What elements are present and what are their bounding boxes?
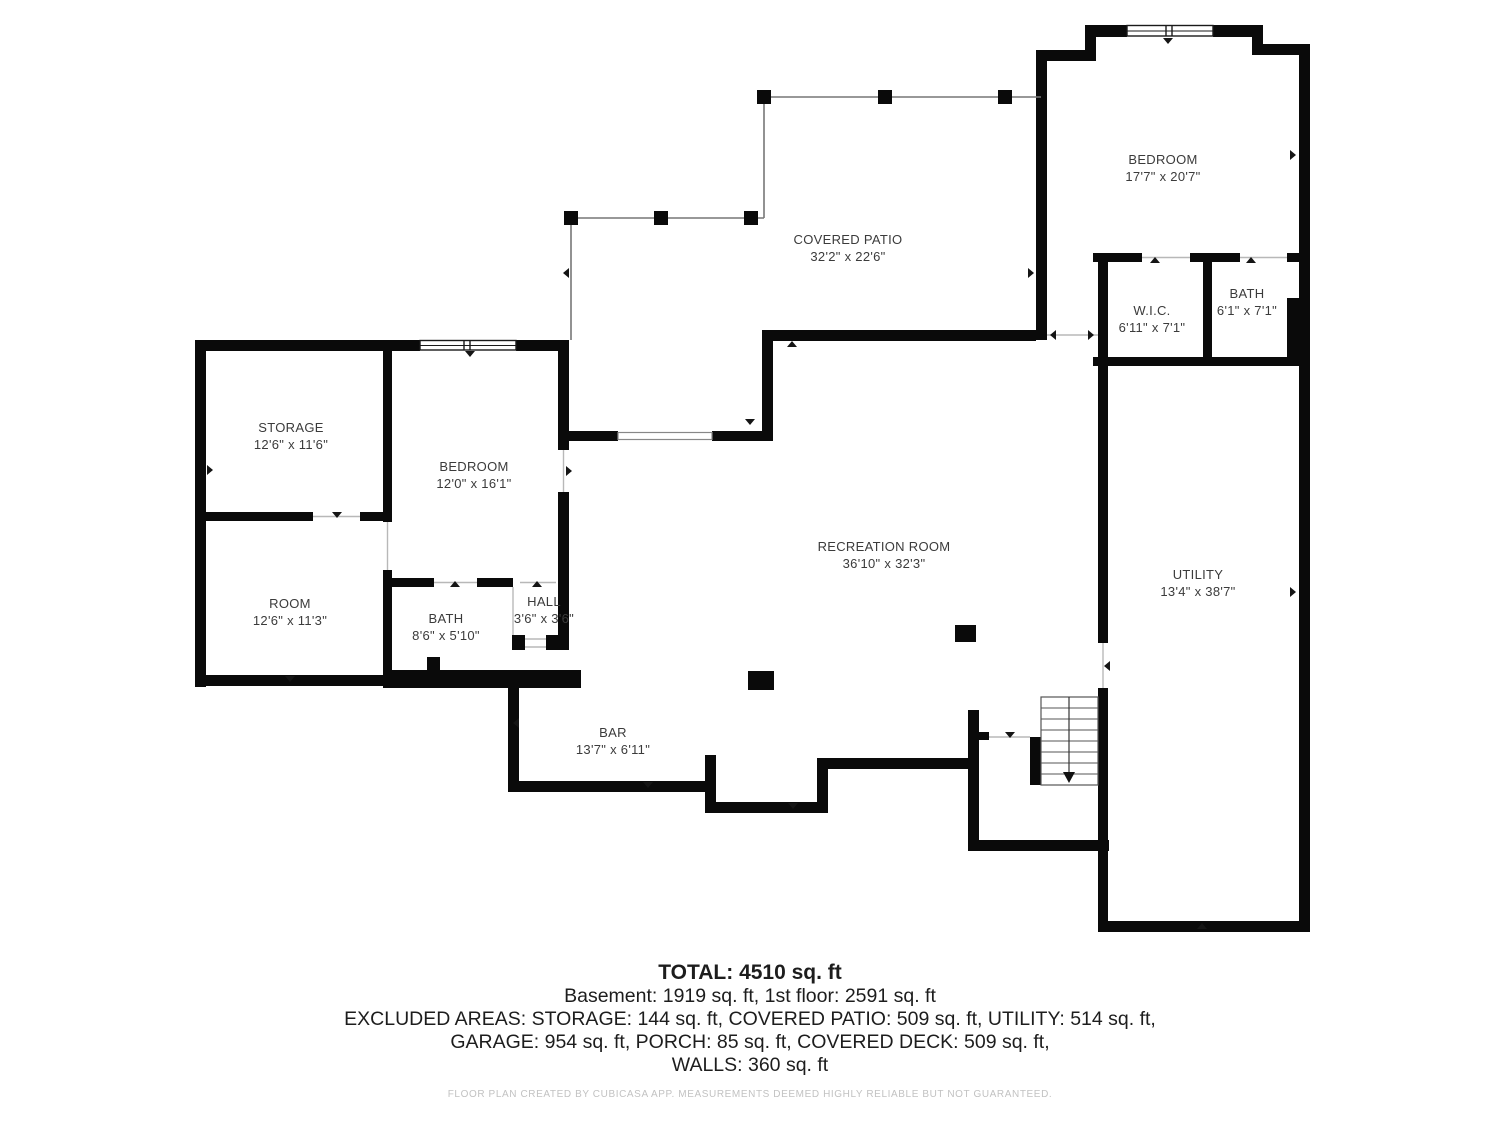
- room-label-bedroom-basement: BEDROOM 12'0" x 16'1": [436, 458, 511, 492]
- room-dimensions: 3'6" x 3'6": [514, 610, 574, 627]
- room-name: BAR: [576, 724, 650, 741]
- room-dimensions: 36'10" x 32'3": [818, 555, 951, 572]
- excluded-areas-text-2: GARAGE: 954 sq. ft, PORCH: 85 sq. ft, CO…: [0, 1031, 1500, 1054]
- room-name: BATH: [412, 610, 480, 627]
- room-dimensions: 8'6" x 5'10": [412, 627, 480, 644]
- room-label-wic: W.I.C. 6'11" x 7'1": [1119, 302, 1186, 336]
- room-name: W.I.C.: [1119, 302, 1186, 319]
- disclaimer-text: FLOOR PLAN CREATED BY CUBICASA APP. MEAS…: [0, 1089, 1500, 1100]
- room-name: RECREATION ROOM: [818, 538, 951, 555]
- room-name: BEDROOM: [1125, 151, 1200, 168]
- room-dimensions: 12'0" x 16'1": [436, 475, 511, 492]
- room-label-covered-patio: COVERED PATIO 32'2" x 22'6": [794, 231, 903, 265]
- floor-plan-page: STORAGE 12'6" x 11'6" BEDROOM 12'0" x 16…: [0, 0, 1500, 1125]
- room-label-utility: UTILITY 13'4" x 38'7": [1160, 566, 1235, 600]
- patio-outline: [571, 97, 1041, 340]
- room-name: COVERED PATIO: [794, 231, 903, 248]
- room-label-bar: BAR 13'7" x 6'11": [576, 724, 650, 758]
- room-name: BEDROOM: [436, 458, 511, 475]
- interior-columns: [748, 625, 976, 690]
- excluded-areas-text: EXCLUDED AREAS: STORAGE: 144 sq. ft, COV…: [0, 1008, 1500, 1031]
- patio-posts: [564, 90, 1012, 225]
- room-label-storage: STORAGE 12'6" x 11'6": [254, 419, 328, 453]
- area-summary: TOTAL: 4510 sq. ft Basement: 1919 sq. ft…: [0, 960, 1500, 1077]
- room-label-recreation-room: RECREATION ROOM 36'10" x 32'3": [818, 538, 951, 572]
- room-label-hall: HALL 3'6" x 3'6": [514, 593, 574, 627]
- room-dimensions: 17'7" x 20'7": [1125, 168, 1200, 185]
- room-dimensions: 32'2" x 22'6": [794, 248, 903, 265]
- floor-areas-text: Basement: 1919 sq. ft, 1st floor: 2591 s…: [0, 985, 1500, 1008]
- room-dimensions: 6'11" x 7'1": [1119, 319, 1186, 336]
- total-area-text: TOTAL: 4510 sq. ft: [0, 960, 1500, 985]
- room-dimensions: 13'4" x 38'7": [1160, 583, 1235, 600]
- room-name: STORAGE: [254, 419, 328, 436]
- room-label-room: ROOM 12'6" x 11'3": [253, 595, 327, 629]
- room-name: UTILITY: [1160, 566, 1235, 583]
- room-name: BATH: [1217, 285, 1277, 302]
- room-name: ROOM: [253, 595, 327, 612]
- room-dimensions: 12'6" x 11'3": [253, 612, 327, 629]
- room-name: HALL: [514, 593, 574, 610]
- staircase: [1041, 697, 1098, 785]
- room-label-bath-main: BATH 6'1" x 7'1": [1217, 285, 1277, 319]
- walls-area-text: WALLS: 360 sq. ft: [0, 1054, 1500, 1077]
- room-dimensions: 6'1" x 7'1": [1217, 302, 1277, 319]
- room-label-bedroom-main: BEDROOM 17'7" x 20'7": [1125, 151, 1200, 185]
- room-label-bath-basement: BATH 8'6" x 5'10": [412, 610, 480, 644]
- room-dimensions: 12'6" x 11'6": [254, 436, 328, 453]
- floor-plan-drawing: [0, 0, 1500, 1125]
- room-dimensions: 13'7" x 6'11": [576, 741, 650, 758]
